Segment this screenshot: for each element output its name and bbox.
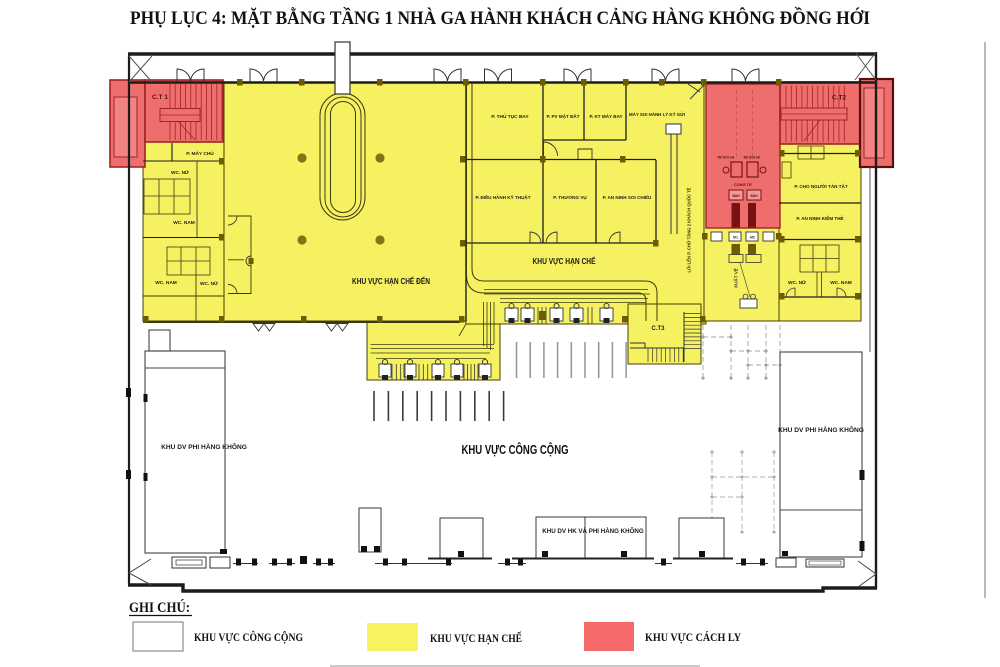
- svg-text:C.T2: C.T2: [832, 95, 846, 102]
- svg-text:P. PV MẶT ĐẤT: P. PV MẶT ĐẤT: [546, 113, 579, 119]
- svg-text:XUẤT VỀ: XUẤT VỀ: [733, 268, 739, 288]
- svg-text:KHU VỰC CÁCH LY: KHU VỰC CÁCH LY: [645, 630, 741, 644]
- svg-text:BÀN: BÀN: [750, 193, 758, 198]
- svg-text:WC. NỮ: WC. NỮ: [788, 279, 806, 286]
- svg-text:KHU VỰC HẠN CHẾ ĐẾN: KHU VỰC HẠN CHẾ ĐẾN: [352, 276, 430, 286]
- svg-text:P. AN NINH SOI CHIẾU: P. AN NINH SOI CHIẾU: [603, 194, 652, 200]
- svg-text:P. THỦ TỤC BAY: P. THỦ TỤC BAY: [491, 113, 529, 120]
- svg-text:KHU DV HK VÀ PHI HÀNG KHÔNG: KHU DV HK VÀ PHI HÀNG KHÔNG: [542, 527, 644, 535]
- svg-text:LỐI LÊN P. CHỜ TẦNG 2 KHÁCH QU: LỐI LÊN P. CHỜ TẦNG 2 KHÁCH QUỐC TẾ: [687, 187, 692, 272]
- svg-text:P. AN NINH KIỂM THẺ: P. AN NINH KIỂM THẺ: [796, 215, 843, 221]
- svg-text:WC. NAM: WC. NAM: [173, 220, 195, 226]
- svg-text:WC. NAM: WC. NAM: [830, 280, 852, 286]
- svg-text:C.T 1: C.T 1: [152, 94, 168, 101]
- svg-text:WC. NỮ: WC. NỮ: [171, 169, 189, 176]
- svg-text:KHU DV PHI HÀNG KHÔNG: KHU DV PHI HÀNG KHÔNG: [161, 442, 247, 451]
- svg-text:P. CHO NGƯỜI TÀN TẬT: P. CHO NGƯỜI TÀN TẬT: [794, 182, 848, 189]
- svg-text:KHU VỰC CÔNG CỘNG: KHU VỰC CÔNG CỘNG: [194, 630, 303, 644]
- svg-text:P. THƯƠNG VỤ: P. THƯƠNG VỤ: [553, 195, 587, 200]
- svg-text:TB SOI HL: TB SOI HL: [717, 156, 736, 160]
- svg-text:WC. NỮ: WC. NỮ: [200, 280, 218, 287]
- svg-text:MÁY SOI HÀNH LÝ KÝ GỬI: MÁY SOI HÀNH LÝ KÝ GỬI: [629, 112, 685, 117]
- svg-text:KHU VỰC HẠN CHẾ: KHU VỰC HẠN CHẾ: [533, 256, 596, 266]
- svg-text:BÀN: BÀN: [732, 193, 740, 198]
- svg-text:KHU VỰC HẠN CHẾ: KHU VỰC HẠN CHẾ: [430, 630, 522, 645]
- svg-text:TB SOI HL: TB SOI HL: [743, 156, 762, 160]
- svg-text:P. KT MÁY BAY: P. KT MÁY BAY: [589, 113, 622, 119]
- svg-text:C.T3: C.T3: [651, 326, 665, 332]
- svg-text:GHI CHÚ:: GHI CHÚ:: [129, 599, 190, 616]
- svg-text:M2: M2: [750, 236, 755, 240]
- svg-text:PHỤ LỤC 4: MẶT BẰNG TẦNG 1 NHÀ: PHỤ LỤC 4: MẶT BẰNG TẦNG 1 NHÀ GA HÀNH K…: [130, 7, 870, 29]
- svg-text:P. ĐIỀU HÀNH KỸ THUẬT: P. ĐIỀU HÀNH KỸ THUẬT: [475, 194, 530, 200]
- svg-text:P. MÁY CHỦ: P. MÁY CHỦ: [186, 150, 214, 157]
- svg-text:KHU DV PHI HÀNG KHÔNG: KHU DV PHI HÀNG KHÔNG: [778, 425, 864, 434]
- svg-text:M1: M1: [733, 236, 738, 240]
- svg-text:WC. NAM: WC. NAM: [155, 280, 177, 286]
- svg-text:KHU VỰC CÔNG CỘNG: KHU VỰC CÔNG CỘNG: [462, 442, 569, 457]
- svg-text:CỔNG TỪ: CỔNG TỪ: [734, 182, 753, 187]
